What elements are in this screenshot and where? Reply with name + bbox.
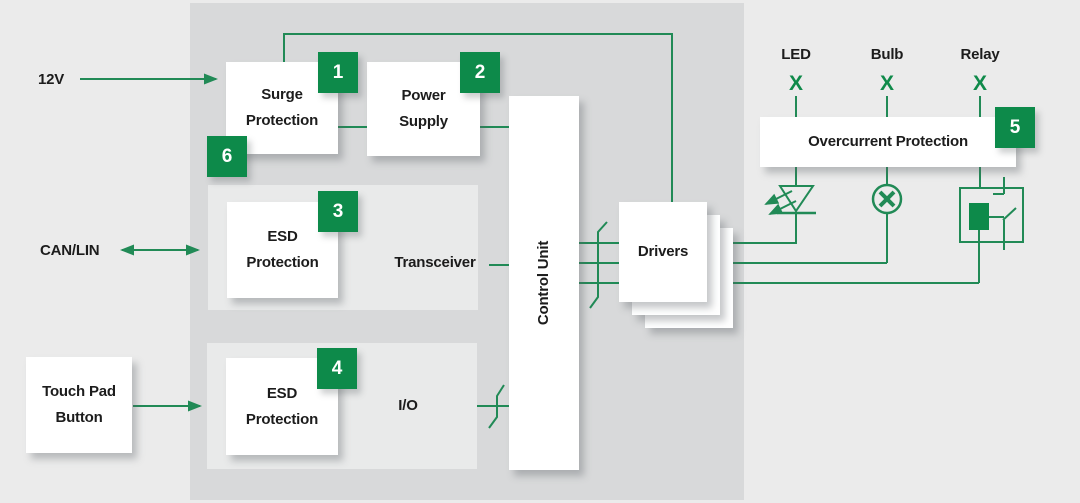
- x-mark-bulb: X: [867, 72, 907, 96]
- block-diagram: Touch Pad Button Surge Protection Power …: [0, 0, 1080, 503]
- badge-1-number: 1: [333, 62, 344, 84]
- label-bulb: Bulb: [862, 46, 912, 63]
- esd-can-label-line1: ESD: [267, 224, 297, 250]
- x-mark-led: X: [776, 72, 816, 96]
- control-unit-block: Control Unit: [509, 96, 579, 470]
- badge-5-number: 5: [1010, 117, 1021, 139]
- label-12v: 12V: [38, 71, 64, 88]
- esd-io-label-line2: Protection: [246, 407, 318, 433]
- label-transceiver: Transceiver: [385, 254, 485, 271]
- bus-slash-drivers: [590, 222, 607, 308]
- control-unit-label: Control Unit: [531, 241, 557, 325]
- bulb-icon: [873, 185, 901, 263]
- led-icon: [766, 186, 816, 243]
- drivers-block: Drivers: [619, 202, 707, 302]
- badge-2-number: 2: [475, 62, 486, 84]
- relay-icon: [960, 177, 1023, 283]
- badge-3-esd-can: 3: [318, 191, 358, 232]
- overcurrent-label: Overcurrent Protection: [808, 129, 968, 155]
- touch-pad-label-line1: Touch Pad: [42, 379, 116, 405]
- touch-pad-button-block: Touch Pad Button: [26, 357, 132, 453]
- power-supply-label-line1: Power: [401, 83, 445, 109]
- label-led: LED: [771, 46, 821, 63]
- esd-can-label-line2: Protection: [246, 250, 318, 276]
- surge-label-line1: Surge: [261, 82, 303, 108]
- label-relay: Relay: [955, 46, 1005, 63]
- x-mark-relay: X: [960, 72, 1000, 96]
- badge-4-esd-io: 4: [317, 348, 357, 389]
- badge-5-overcurrent: 5: [995, 107, 1035, 148]
- power-supply-label-line2: Supply: [399, 109, 448, 135]
- badge-2-power-supply: 2: [460, 52, 500, 93]
- badge-6-surge-bottom: 6: [207, 136, 247, 177]
- overcurrent-protection-block: Overcurrent Protection: [760, 117, 1016, 167]
- touch-pad-label-line2: Button: [55, 405, 102, 431]
- label-can-lin: CAN/LIN: [40, 242, 99, 259]
- badge-1-surge: 1: [318, 52, 358, 93]
- badge-4-number: 4: [332, 358, 343, 380]
- badge-6-number: 6: [222, 146, 233, 168]
- label-io: I/O: [390, 397, 426, 414]
- drivers-label: Drivers: [638, 239, 688, 265]
- badge-3-number: 3: [333, 201, 344, 223]
- esd-io-label-line1: ESD: [267, 381, 297, 407]
- surge-label-line2: Protection: [246, 108, 318, 134]
